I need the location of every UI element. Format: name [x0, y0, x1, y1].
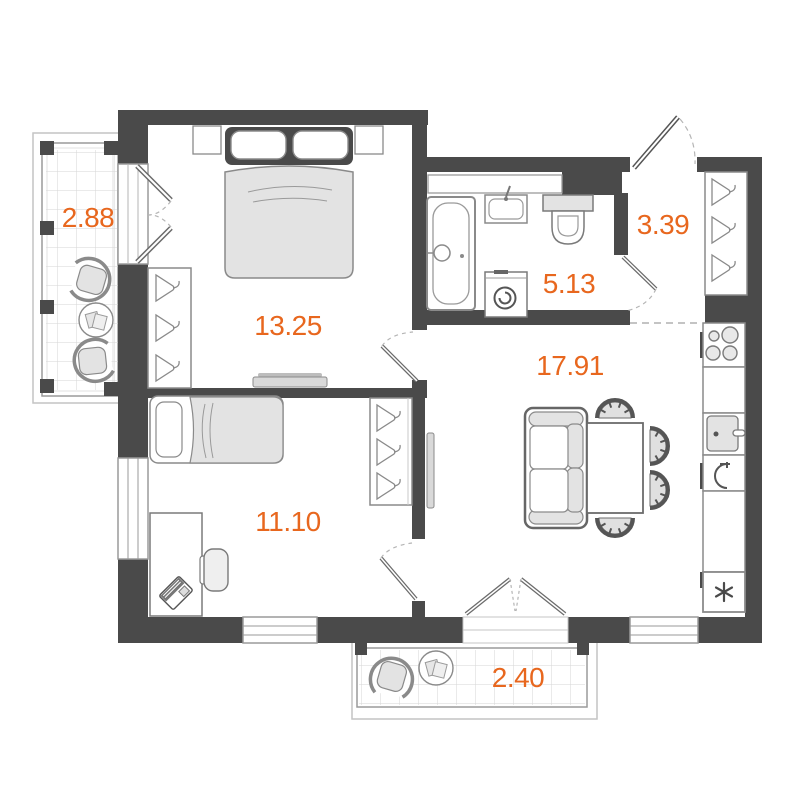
kitchen-counter — [703, 367, 745, 413]
kitchen-units — [703, 323, 745, 612]
dining-chair-icon — [650, 472, 669, 508]
desk-chair — [200, 549, 228, 591]
balcony-french-door — [463, 579, 568, 643]
dining-chair-icon — [650, 428, 669, 464]
tv-living — [427, 433, 434, 508]
room-second-door — [381, 543, 416, 599]
stove-icon — [703, 323, 745, 367]
room-area-bathroom: 5.13 — [543, 268, 596, 299]
wardrobe-hallway — [705, 172, 747, 295]
nightstand — [193, 126, 221, 154]
toilet-icon — [543, 195, 593, 244]
coffee-table-icon — [419, 651, 453, 685]
wardrobe-room-second — [370, 398, 412, 505]
tv-bedroom — [253, 373, 327, 387]
bathroom-shelf — [428, 175, 562, 193]
bedroom-door — [382, 332, 417, 381]
balcony-left — [33, 133, 118, 403]
room-area-room-second: 11.10 — [255, 506, 321, 537]
kitchen-sink-icon — [703, 413, 745, 455]
room-area-hallway: 3.39 — [637, 209, 690, 240]
dish-dryer-icon — [703, 455, 745, 491]
fridge-icon — [703, 572, 745, 612]
window-bottom-right — [630, 617, 698, 643]
floor-plan: 2.88 13.25 5.13 3.39 17.91 11.10 2.40 — [0, 0, 800, 800]
wardrobe-bedroom — [148, 268, 191, 388]
dining-chair-icon — [597, 518, 633, 537]
coffee-table-icon — [79, 303, 113, 337]
nightstand — [355, 126, 383, 154]
bathtub-icon — [427, 197, 475, 310]
washing-machine-icon — [485, 270, 527, 317]
room-area-bedroom: 13.25 — [254, 310, 322, 341]
dining-table — [587, 423, 643, 513]
double-bed — [193, 126, 383, 278]
dining-set — [587, 399, 669, 537]
floor-plan-canvas: 2.88 13.25 5.13 3.39 17.91 11.10 2.40 — [0, 0, 800, 800]
window-bottom-left — [243, 617, 317, 643]
room-area-living-kitchen: 17.91 — [536, 350, 604, 381]
dining-chair-icon — [597, 399, 633, 418]
window-left — [118, 458, 148, 559]
bathroom-door — [623, 257, 656, 311]
entrance-door — [634, 117, 695, 168]
room-area-balcony-left: 2.88 — [62, 202, 115, 233]
balcony-door-bedroom — [118, 164, 171, 264]
desk — [150, 513, 202, 616]
kitchen-counter — [703, 491, 745, 572]
balcony-bottom — [352, 643, 597, 719]
sofa — [525, 408, 587, 528]
single-bed — [150, 396, 283, 463]
room-area-balcony-bottom: 2.40 — [492, 662, 545, 693]
